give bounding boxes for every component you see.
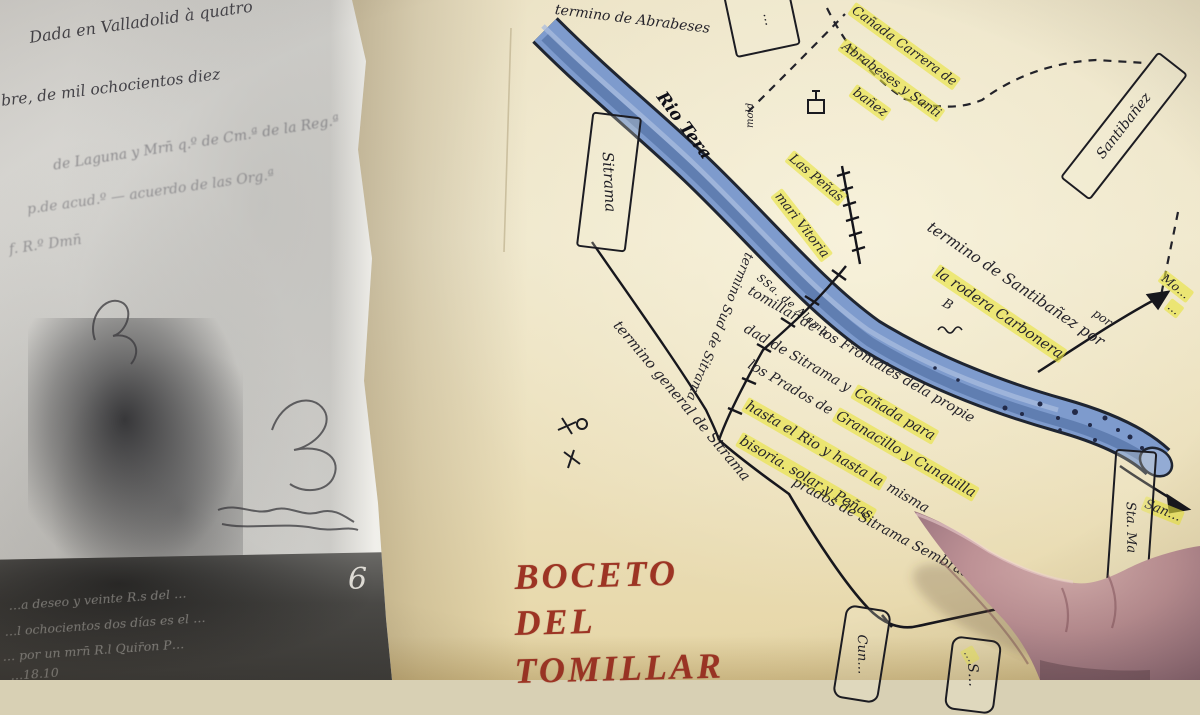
map-title-line-3: TOMILLAR — [514, 645, 724, 692]
page-number: 6 — [348, 562, 367, 597]
page-bottom-shadow — [335, 636, 1200, 680]
label-mill: mold — [745, 103, 756, 128]
map-title-line-2: DEL — [514, 600, 596, 644]
placebox-s: S… — [944, 635, 1003, 715]
dark-band-line-4: …18.10 — [10, 665, 59, 680]
photo-of-book-with-sketch-map: { "left_page": { "heading_lines": ["Dada… — [0, 0, 1200, 680]
manuscript-page: Dada en Valladolid à quatro bre, de mil … — [0, 0, 400, 680]
map-title-line-1: BOCETO — [514, 552, 678, 598]
